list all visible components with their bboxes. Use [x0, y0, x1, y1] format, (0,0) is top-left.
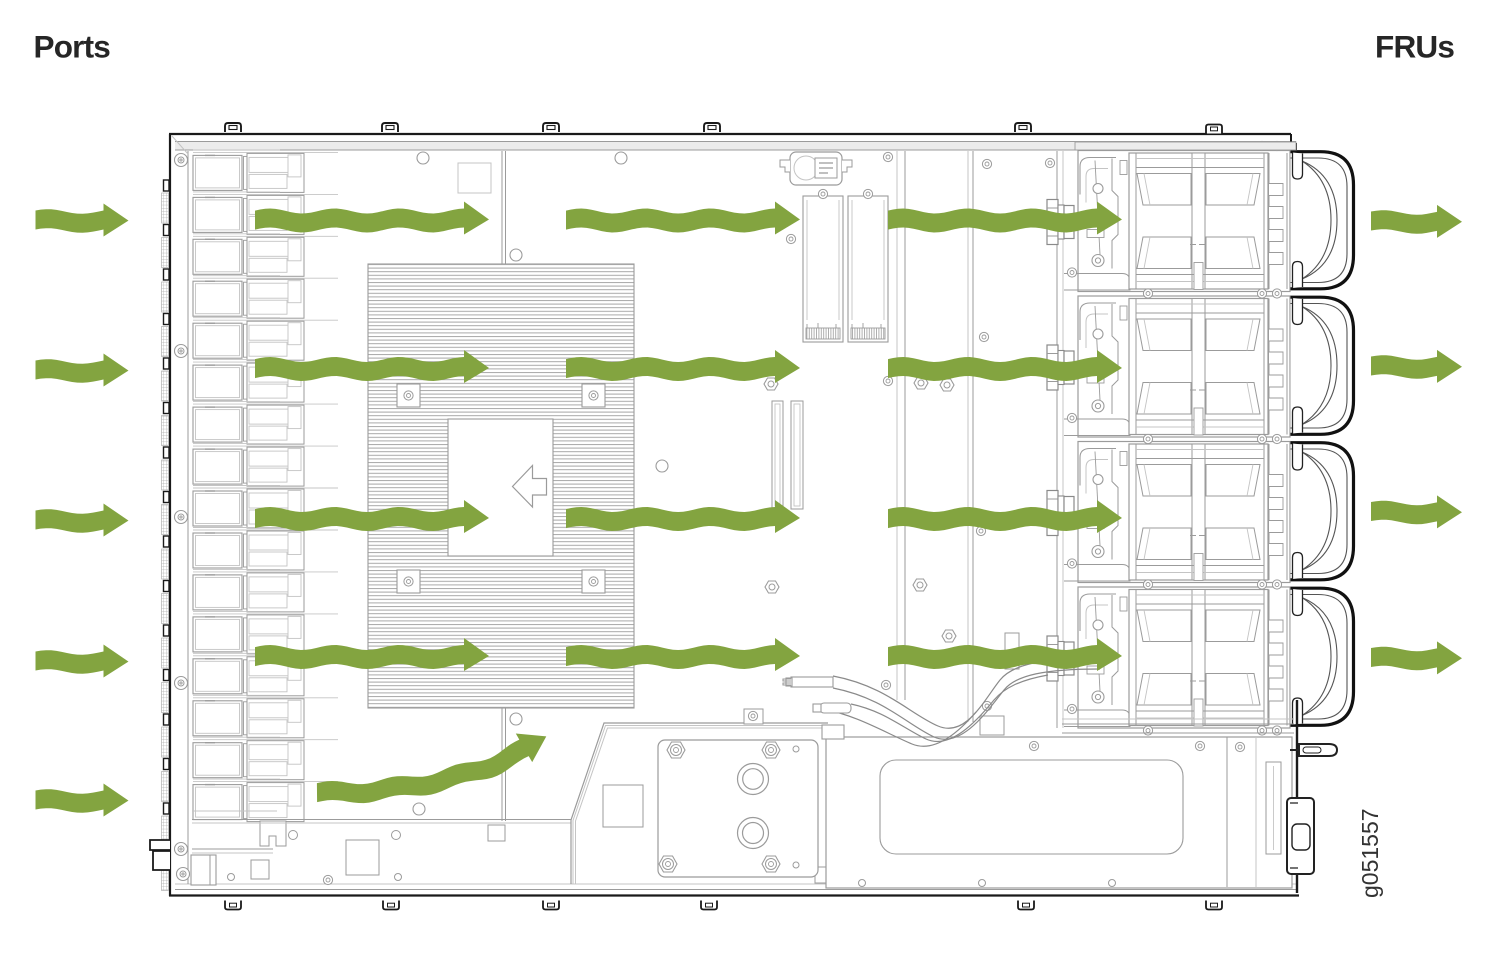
svg-text:g051557: g051557	[1357, 808, 1383, 898]
svg-text:Ports: Ports	[34, 29, 111, 65]
svg-text:FRUs: FRUs	[1375, 29, 1454, 65]
